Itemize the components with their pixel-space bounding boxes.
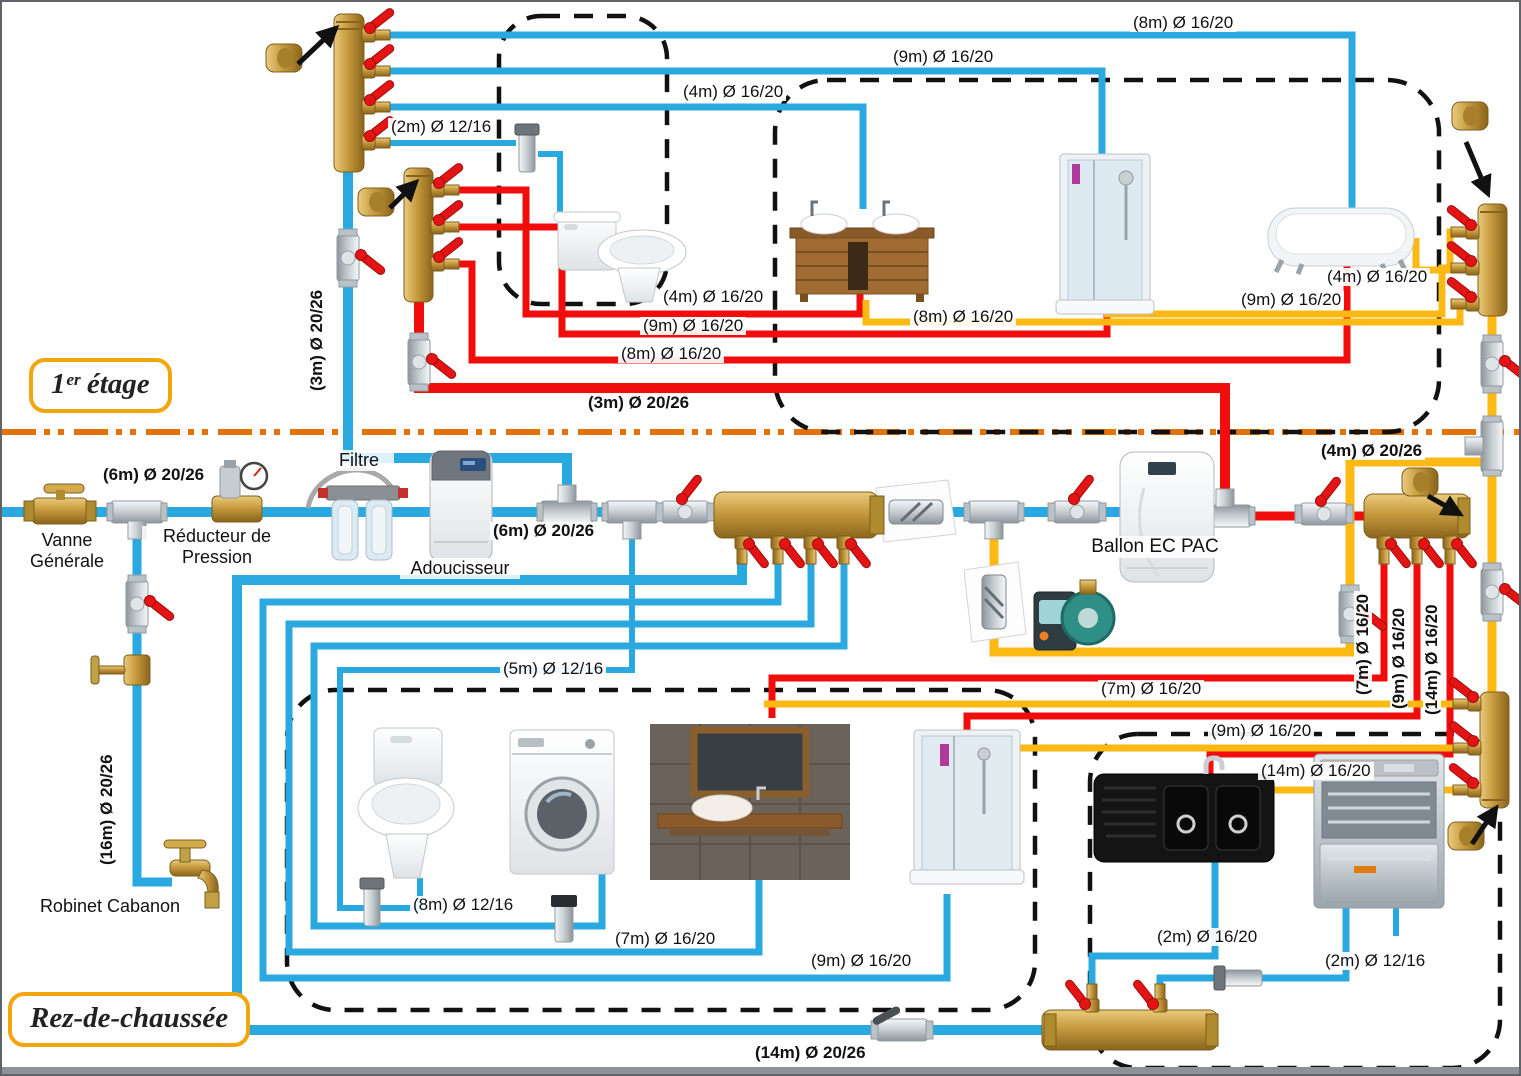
pipe-label: (7m) Ø 16/20: [1098, 680, 1204, 698]
brass-cap-return-ff: [1452, 102, 1488, 130]
brass-cap-manifold-hot-gf: [1402, 468, 1438, 496]
manifold-kitchen: [1042, 978, 1218, 1050]
ball-valve-riser-hot: [408, 333, 458, 391]
ball-valve-return-ff: [1481, 335, 1521, 393]
check-valve-return: [964, 562, 1026, 642]
vanity-first-floor: [790, 202, 934, 302]
pipe-label: (2m) Ø 12/16: [388, 118, 494, 136]
tee-wc-gf: [602, 501, 662, 539]
pipe-label: (9m) Ø 16/20: [1208, 722, 1314, 740]
heat-pump-water-heater: [1120, 452, 1214, 582]
brass-cap-manifold-hot-ff: [358, 188, 394, 216]
pipe-label: (3m) Ø 20/26: [308, 287, 326, 394]
angle-valve-washer: [551, 895, 577, 942]
pipe-label: (16m) Ø 20/26: [98, 751, 116, 868]
pipe-label: (8m) Ø 16/20: [1130, 14, 1236, 32]
label-water-heater: Ballon EC PAC: [1088, 536, 1222, 558]
manifold-cold-ground-floor: [714, 492, 884, 570]
pipe-label: (6m) Ø 20/26: [100, 466, 207, 484]
pipe-label: (4m) Ø 16/20: [1324, 268, 1430, 286]
floor-label-first: 1ᵉʳ étage: [29, 358, 172, 413]
pipe-label: (9m) Ø 16/20: [1238, 291, 1344, 309]
label-pressure-reducer: Réducteur de Pression: [142, 526, 292, 567]
label-main-shutoff: Vanne Générale: [12, 530, 122, 571]
pipe-label: (14m) Ø 20/26: [752, 1044, 869, 1062]
arrow-to-cold-manifold-ff: [298, 28, 336, 64]
water-softener: [430, 451, 492, 560]
toilet-ground-floor: [358, 728, 454, 878]
pipe-cold-wc-ff-tail: [538, 154, 560, 220]
pipe-label: (14m) Ø 16/20: [1423, 601, 1441, 718]
pipe-label: (7m) Ø 16/20: [612, 930, 718, 948]
label-softener: Adoucisseur: [400, 558, 520, 579]
pipe-label: (8m) Ø 16/20: [618, 345, 724, 363]
ball-valve-before-manifold: [656, 473, 714, 523]
manifold-return-first-floor: [1445, 203, 1507, 316]
callout-arrows: [298, 28, 1496, 844]
pressure-reducer: [212, 460, 267, 522]
ball-valve-riser-cold: [337, 229, 387, 287]
circulation-pump: [1034, 580, 1114, 650]
kitchen-sink: [1094, 758, 1274, 862]
arrow-to-return-manifold-ff: [1466, 142, 1488, 194]
vanity-ground-floor: [650, 724, 850, 880]
pipe-cold-bathtub-8m: [364, 35, 1352, 210]
pipe-label: (4m) Ø 16/20: [680, 83, 786, 101]
pipe-label: (14m) Ø 16/20: [1258, 762, 1374, 780]
pipe-label: (4m) Ø 20/26: [1318, 442, 1425, 460]
bathtub: [1268, 208, 1414, 274]
angle-valve-wc-ff: [515, 124, 539, 172]
pipe-label: (9m) Ø 16/20: [890, 48, 996, 66]
shower-ground-floor: [910, 730, 1024, 884]
main-shutoff-valve: [24, 484, 96, 524]
pipe-label: (2m) Ø 12/16: [1322, 952, 1428, 970]
ball-valve-before-ballon: [1048, 473, 1106, 523]
label-garden-tap: Robinet Cabanon: [30, 896, 190, 917]
plumbing-diagram: 1ᵉʳ étage Rez-de-chaussée Vanne Générale…: [0, 0, 1521, 1076]
check-valve-main: [876, 480, 956, 542]
pipe-label: (6m) Ø 20/26: [490, 522, 597, 540]
brass-cap-manifold-cold-ff: [266, 44, 302, 72]
pipe-label: (8m) Ø 12/16: [410, 896, 516, 914]
tee-riser-first-floor: [537, 485, 597, 523]
angle-valve-dishwasher: [1214, 966, 1262, 990]
tee-return-loop: [964, 501, 1024, 539]
floor-label-ground: Rez-de-chaussée: [8, 992, 250, 1047]
angle-valve-wc-gf: [360, 878, 384, 926]
manifold-hot-ground-floor: [1364, 494, 1479, 570]
pipe-label: (2m) Ø 16/20: [1154, 928, 1260, 946]
fittings: [91, 6, 1521, 1050]
pipe-label: (7m) Ø 16/20: [1354, 591, 1372, 698]
pipe-label: (5m) Ø 12/16: [500, 660, 606, 678]
ball-valve-return-gf: [1481, 563, 1521, 621]
manifold-cold-first-floor: [334, 6, 396, 172]
pipe-label: (8m) Ø 16/20: [910, 308, 1016, 326]
ball-valve-cabanon: [126, 575, 176, 633]
shower-first-floor: [1056, 154, 1154, 314]
pipe-label: (4m) Ø 16/20: [660, 288, 766, 306]
tee-return-right: [1465, 416, 1503, 476]
ball-valve-hot-gf: [1295, 475, 1353, 525]
washing-machine: [510, 730, 614, 874]
label-filter: Filtre: [324, 450, 394, 471]
pipe-label: (3m) Ø 20/26: [585, 394, 692, 412]
manifold-return-ground-floor: [1447, 675, 1509, 808]
pipe-label: (9m) Ø 16/20: [640, 317, 746, 335]
pipe-label: (9m) Ø 16/20: [1390, 605, 1408, 712]
pipe-label: (9m) Ø 16/20: [808, 952, 914, 970]
stop-valve-cabanon: [91, 655, 150, 685]
